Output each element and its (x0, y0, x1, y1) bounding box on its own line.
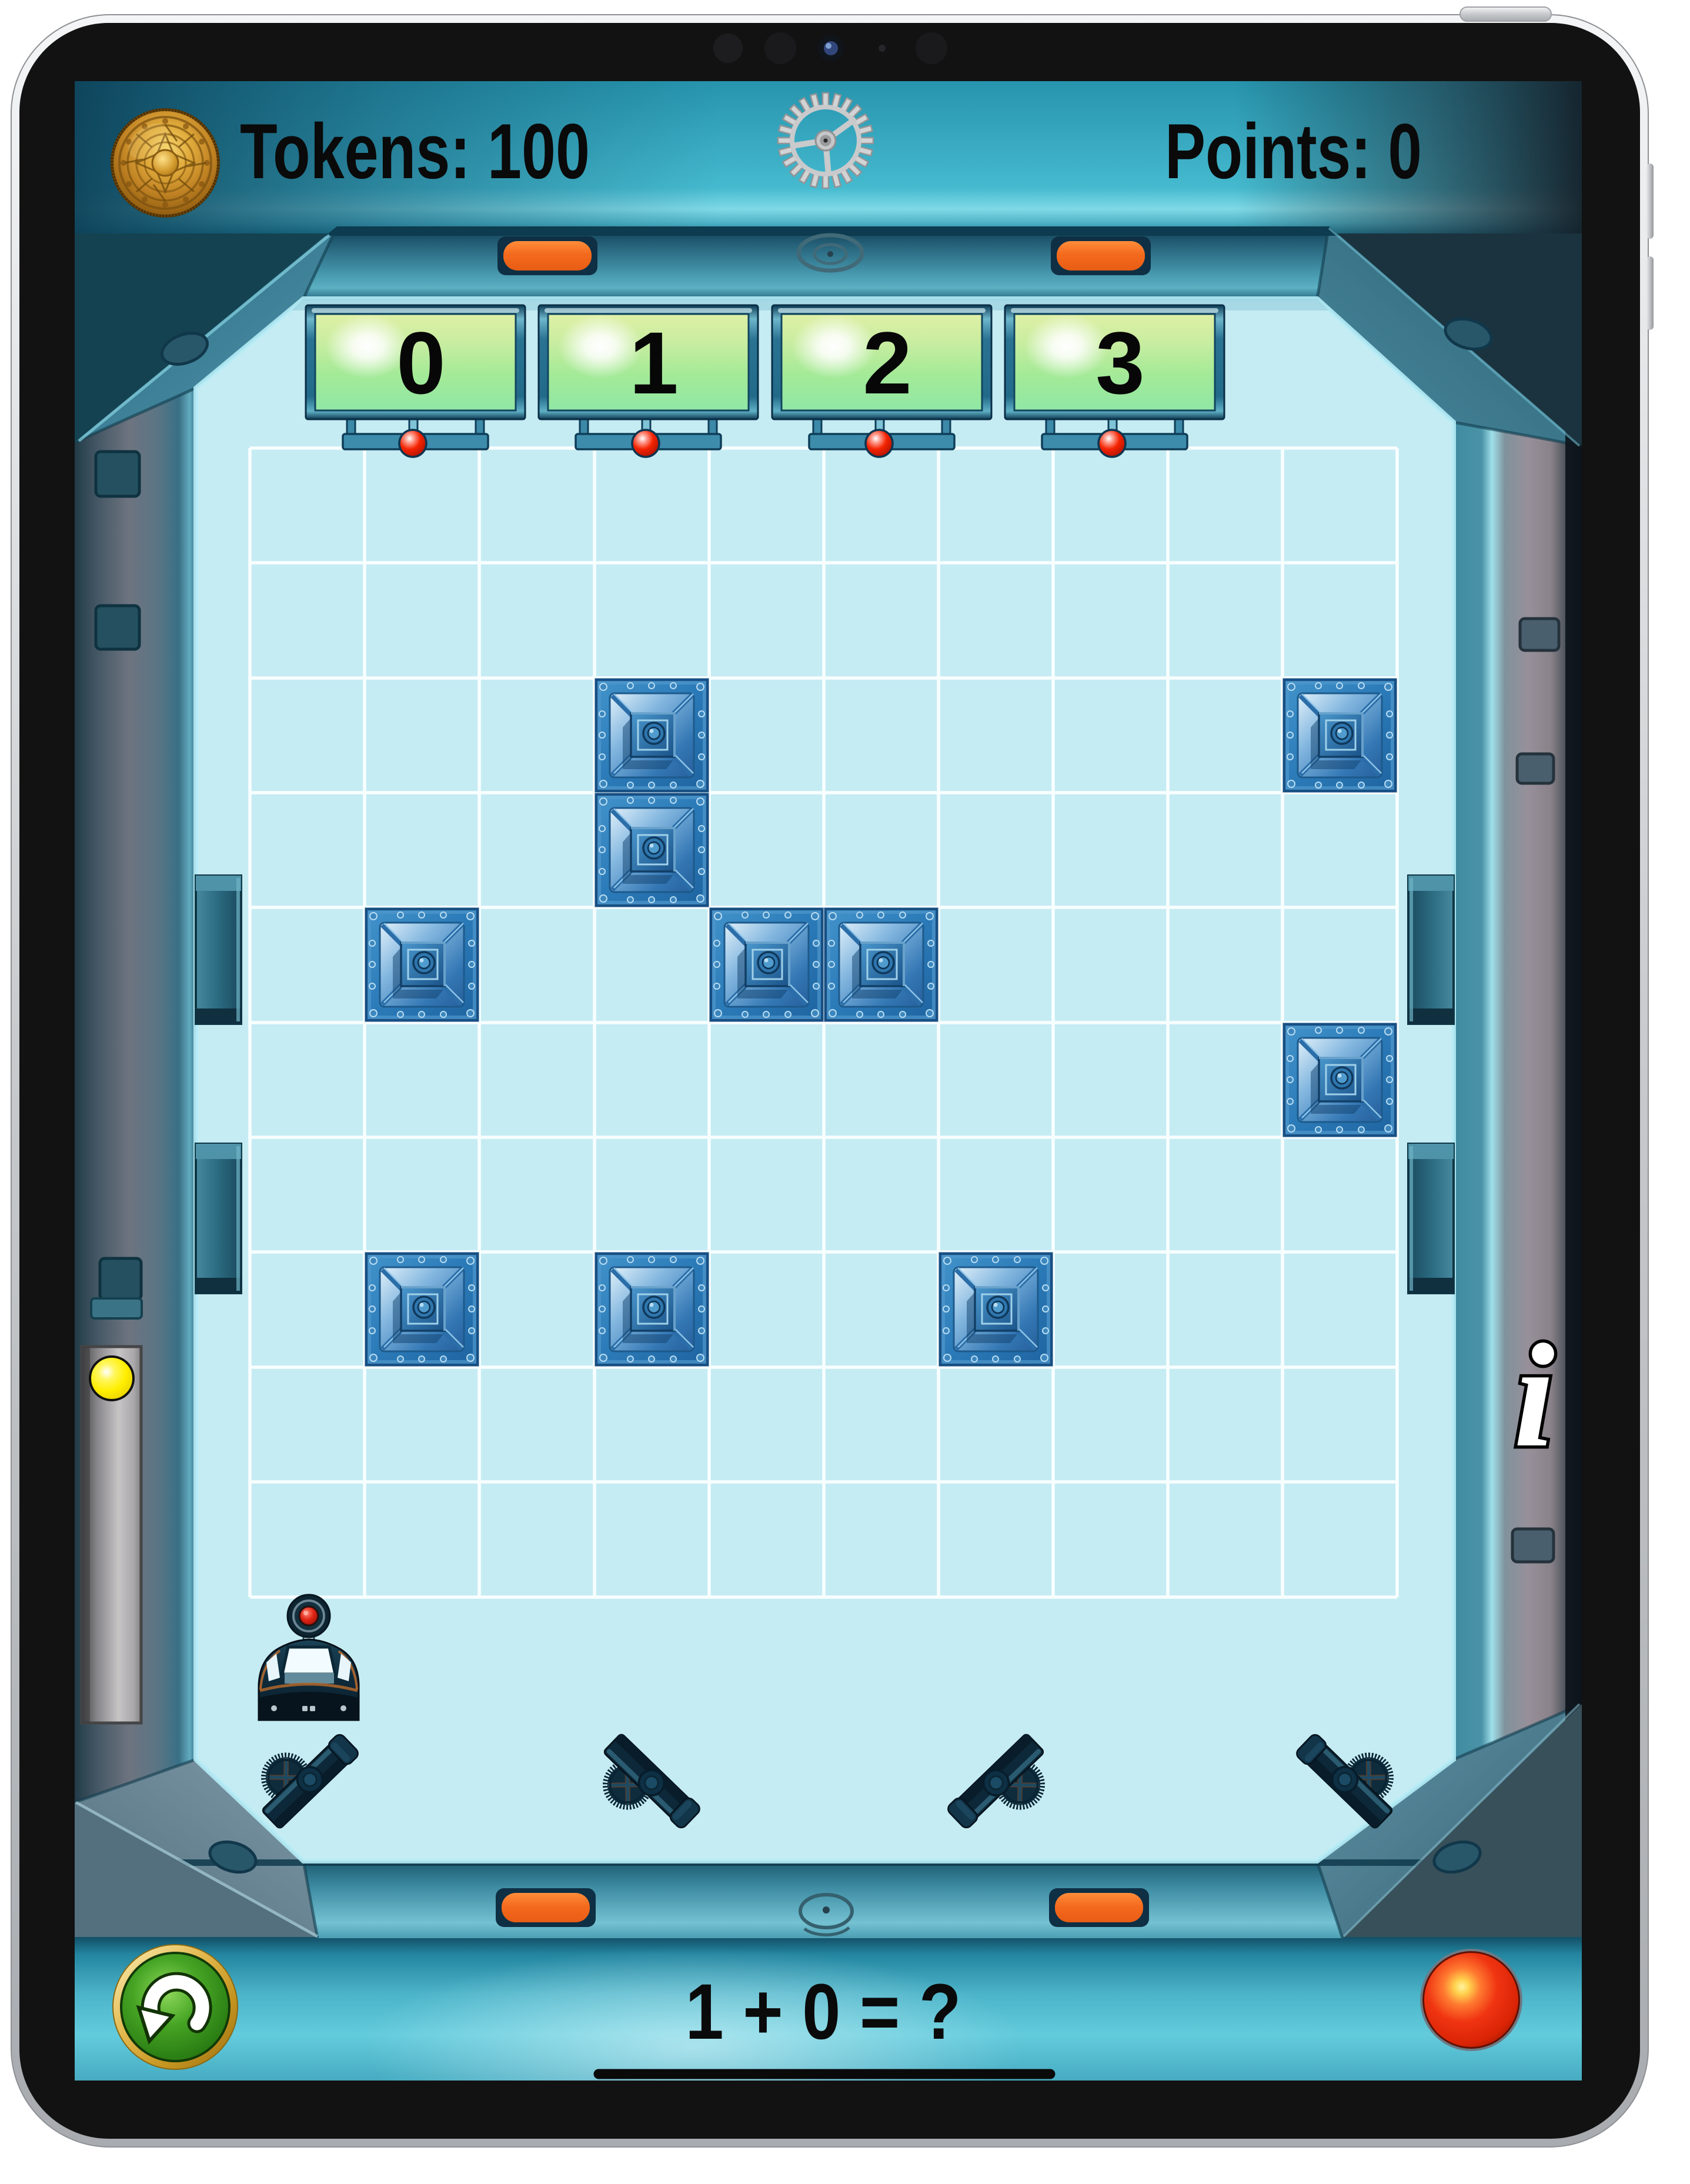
svg-text:3: 3 (1096, 313, 1144, 412)
svg-text:Points: 0: Points: 0 (1165, 108, 1422, 195)
svg-text:2: 2 (863, 313, 911, 412)
svg-text:1: 1 (629, 313, 678, 412)
svg-text:1 + 0 = ?: 1 + 0 = ? (686, 1968, 961, 2056)
svg-text:0: 0 (396, 313, 445, 412)
svg-text:Tokens: 100: Tokens: 100 (240, 108, 590, 195)
svg-text:i: i (1514, 1313, 1555, 1478)
